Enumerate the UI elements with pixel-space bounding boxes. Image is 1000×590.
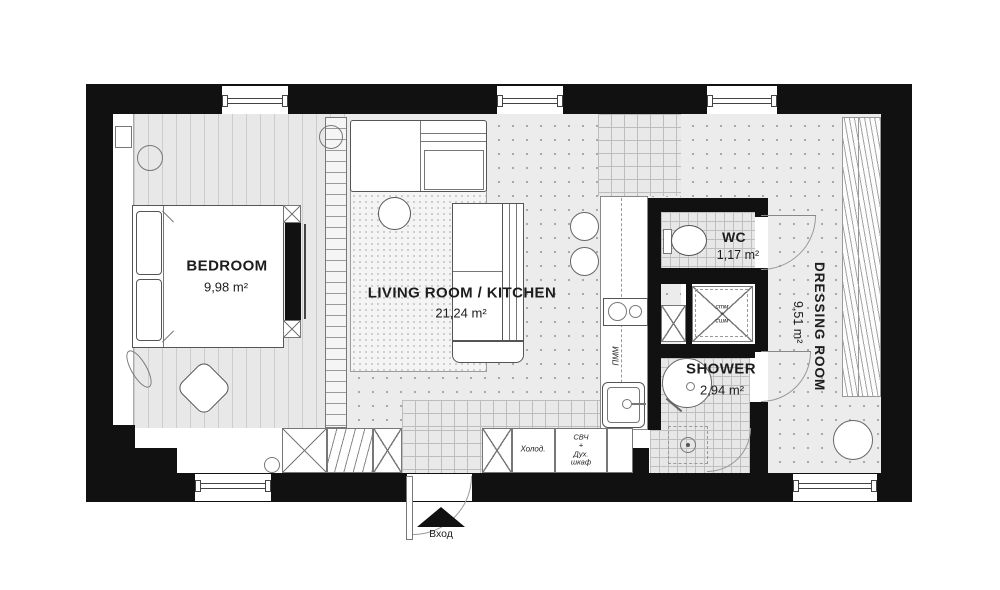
living-room-area: 21,24 m² bbox=[435, 307, 486, 322]
window bbox=[222, 86, 288, 114]
fridge-label: Холод. bbox=[520, 446, 545, 455]
faucet-spout bbox=[632, 403, 646, 405]
wc-wall-top bbox=[648, 198, 768, 212]
bar-stool bbox=[570, 212, 599, 241]
dressing-room-label: DRESSING ROOM bbox=[812, 262, 827, 391]
window bbox=[793, 474, 877, 501]
sofa-right-armrest bbox=[452, 341, 524, 363]
burner bbox=[629, 305, 642, 318]
wall-cabinet bbox=[115, 126, 132, 148]
coat-closet bbox=[327, 428, 373, 473]
shower-area: 2,94 m² bbox=[700, 384, 744, 399]
hall-lamp bbox=[264, 457, 280, 473]
ceiling-lamp-living bbox=[319, 125, 343, 149]
entrance-label: Вход bbox=[429, 528, 453, 540]
sofa-cushion-line bbox=[421, 133, 486, 134]
window bbox=[195, 474, 271, 501]
wardrobe-rail bbox=[842, 117, 881, 397]
entrance-door-leaf bbox=[406, 476, 413, 540]
bar-stool bbox=[570, 247, 599, 276]
pouf bbox=[833, 420, 873, 460]
wardrobe-rail-line bbox=[858, 118, 859, 396]
shower-label: SHOWER bbox=[686, 360, 756, 377]
wall-right bbox=[881, 84, 912, 502]
washer-dryer-label: стм + сшм bbox=[715, 303, 728, 324]
wc-label: WC bbox=[722, 229, 746, 245]
ceiling-lamp-bedroom bbox=[137, 145, 163, 171]
tv-stand-end bbox=[283, 205, 301, 223]
niche-wall-left bbox=[686, 284, 692, 344]
dressing-room-area: 9,51 m² bbox=[791, 301, 805, 343]
toilet-bowl bbox=[671, 225, 707, 256]
sofa-back-line bbox=[509, 204, 510, 340]
bed-headboard-line bbox=[163, 206, 164, 347]
wall-step-left2 bbox=[135, 448, 177, 473]
faucet bbox=[622, 399, 632, 409]
entry-vestibule-tiles bbox=[402, 430, 482, 473]
bedroom-area: 9,98 m² bbox=[204, 281, 248, 296]
dishwasher-label: ПММ bbox=[613, 346, 622, 365]
floor-plan: BEDROOM 9,98 m² LIVING ROOM / KITCHEN 21… bbox=[0, 0, 1000, 590]
oven-microwave-label: СВЧ + Дух. шкаф bbox=[571, 434, 591, 467]
window bbox=[707, 86, 777, 114]
tv-stand-end bbox=[283, 320, 301, 338]
pillow bbox=[136, 279, 162, 341]
shower-head-center bbox=[686, 382, 695, 391]
bedroom-left-strip bbox=[113, 114, 134, 428]
coffee-table bbox=[378, 197, 411, 230]
hall-closet bbox=[373, 428, 402, 473]
wall-step-left bbox=[110, 425, 135, 473]
entrance-arrow bbox=[417, 507, 465, 527]
wc-wall-left bbox=[648, 198, 661, 430]
sofa-chaise-cushion bbox=[424, 150, 484, 190]
wc-area: 1,17 m² bbox=[717, 248, 759, 262]
room-divider-shelving bbox=[325, 117, 347, 428]
living-room-label: LIVING ROOM / KITCHEN bbox=[368, 284, 556, 301]
sofa-right-cushion-line bbox=[453, 271, 502, 272]
kitchen-cabinet bbox=[607, 428, 633, 473]
window bbox=[497, 86, 563, 114]
sofa-cushion-line bbox=[421, 141, 486, 142]
duct-shaft bbox=[661, 305, 686, 342]
tv-screen bbox=[304, 224, 306, 319]
pillow bbox=[136, 211, 162, 275]
sofa-back-line bbox=[516, 204, 517, 340]
sofa-top-divider bbox=[420, 121, 421, 191]
wall-step-kitchen bbox=[633, 448, 649, 473]
kitchen-tall-unit bbox=[482, 428, 512, 473]
wall-left bbox=[86, 84, 113, 502]
wc-wall-bottom bbox=[648, 344, 768, 358]
wc-wall-mid bbox=[648, 268, 768, 284]
burner bbox=[608, 302, 627, 321]
wc-wall-right-mid bbox=[755, 268, 768, 354]
shower-wall-pillar bbox=[750, 402, 768, 473]
tv-cabinet bbox=[285, 223, 301, 320]
bedroom-label: BEDROOM bbox=[186, 257, 267, 274]
floor-drain-dot bbox=[686, 443, 690, 447]
hall-closet bbox=[282, 428, 327, 473]
sofa-right-back bbox=[502, 203, 524, 341]
kitchen-floor-tiles-top bbox=[598, 114, 681, 196]
